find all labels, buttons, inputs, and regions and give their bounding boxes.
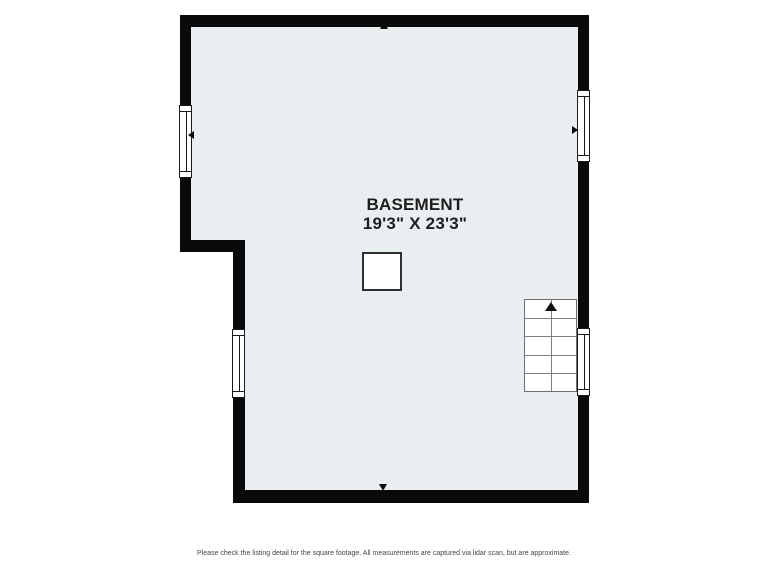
window-sill-line: [578, 389, 589, 390]
dimension-arrow-down-icon: [379, 484, 387, 491]
window-pane-line: [584, 97, 585, 155]
dimension-arrow-up-icon: [380, 22, 388, 29]
window-sill-line: [578, 155, 589, 156]
stairs-up-arrow-icon: [545, 302, 557, 311]
floorplan-image: BASEMENT 19'3" X 23'3" Please check the …: [0, 0, 768, 576]
staircase: [524, 299, 577, 392]
wall-bottom: [233, 490, 589, 503]
window-sill-line: [233, 391, 244, 392]
dimension-arrow-right-icon: [572, 126, 578, 134]
disclaimer-text: Please check the listing detail for the …: [0, 549, 768, 558]
support-post: [362, 252, 402, 291]
dimension-arrow-left-icon: [188, 131, 194, 139]
window-left-upper: [179, 105, 192, 178]
wall-right: [578, 15, 589, 503]
room-label: BASEMENT 19'3" X 23'3": [363, 195, 467, 233]
stair-center-line: [551, 300, 552, 391]
window-left-lower: [232, 329, 245, 398]
room-name: BASEMENT: [363, 195, 467, 214]
window-right-upper: [577, 90, 590, 162]
window-right-lower: [577, 328, 590, 396]
window-pane-line: [186, 112, 187, 171]
window-pane-line: [584, 335, 585, 389]
window-sill-line: [180, 171, 191, 172]
window-pane-line: [239, 336, 240, 391]
room-dimensions: 19'3" X 23'3": [363, 214, 467, 233]
